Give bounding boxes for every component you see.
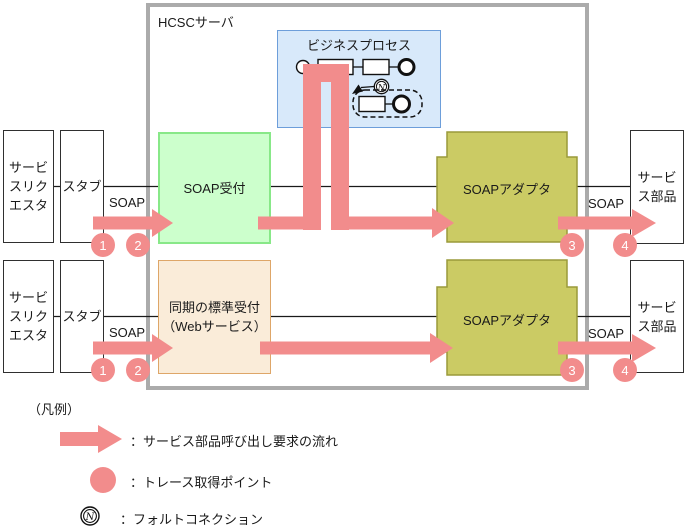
- trace-point-4-top: 4: [613, 233, 637, 257]
- soap-label-top-left: SOAP: [106, 195, 148, 210]
- legend-trace-label: ：トレース取得ポイント: [130, 472, 272, 491]
- trace-point-1-top: 1: [91, 233, 115, 257]
- arrowhead-icon: [430, 333, 453, 363]
- soap-label-top-right: SOAP: [585, 196, 627, 211]
- arrowhead-icon: [152, 334, 173, 362]
- flow-arrows-layer: [0, 0, 685, 531]
- legend-title: （凡例）: [28, 399, 80, 418]
- legend-fault-label: ：フォルトコネクション: [120, 509, 263, 528]
- soap-label-bottom-right: SOAP: [585, 326, 627, 341]
- trace-point-4-bottom: 4: [613, 358, 637, 382]
- arrowhead-icon: [632, 334, 656, 362]
- flow-loop-business-process: [312, 73, 340, 230]
- arrowhead-icon: [432, 208, 454, 238]
- arrowhead-icon: [98, 425, 122, 453]
- flow-arrows: [60, 73, 656, 453]
- arrowhead-icon: [152, 209, 173, 237]
- trace-point-3-top: 3: [560, 233, 584, 257]
- diagram-canvas: HCSCサーバ サービ スリク エスタ スタブ サービ スリク エスタ スタブ …: [0, 0, 685, 531]
- arrowhead-icon: [632, 209, 656, 237]
- legend-flow-label: ：サービス部品呼び出し要求の流れ: [130, 431, 338, 450]
- trace-point-2-bottom: 2: [126, 358, 150, 382]
- trace-point-1-bottom: 1: [91, 358, 115, 382]
- trace-point-3-bottom: 3: [560, 358, 584, 382]
- legend-trace-point-icon: [90, 467, 116, 493]
- soap-label-bottom-left: SOAP: [106, 325, 148, 340]
- trace-point-2-top: 2: [126, 233, 150, 257]
